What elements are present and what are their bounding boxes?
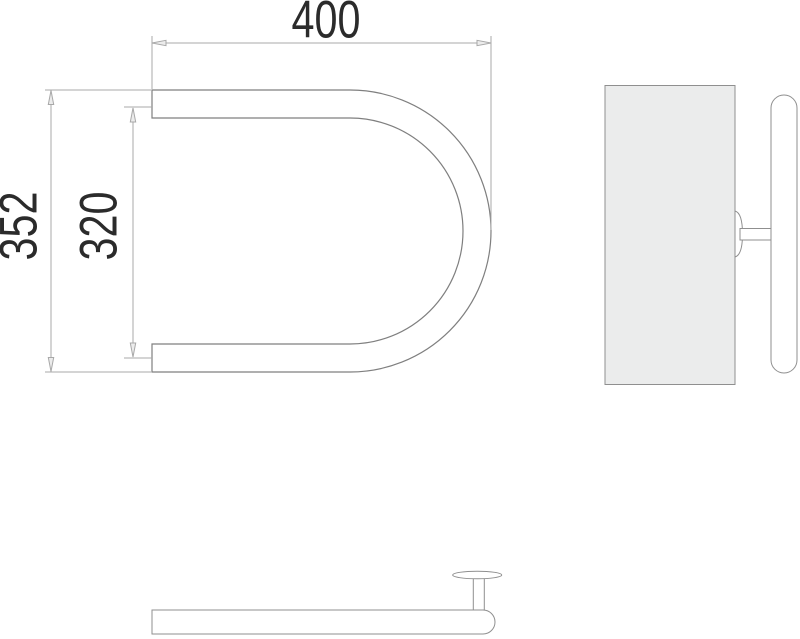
dimension-value-400: 400: [292, 0, 361, 47]
arrowhead-down-icon: [48, 358, 53, 372]
towel-rail-tube-outline: [152, 90, 491, 372]
bottom-view: [152, 571, 502, 634]
dimension-value-320: 320: [73, 192, 126, 261]
tube-side-profile: [771, 95, 797, 373]
arrowhead-left-icon: [152, 40, 166, 45]
dimension-value-352: 352: [0, 192, 46, 261]
arrowhead-up-icon: [48, 91, 53, 105]
arrowhead-up-icon: [130, 108, 135, 122]
technical-drawing: [0, 0, 800, 639]
front-view: [152, 90, 491, 372]
bracket-stem: [473, 575, 484, 610]
technical-drawing-canvas: 400 352 320: [0, 0, 800, 639]
bracket-arm: [740, 229, 771, 241]
wall-panel: [605, 86, 735, 385]
tube-bottom-profile: [152, 610, 495, 634]
side-view: [605, 86, 797, 385]
arrowhead-right-icon: [477, 40, 491, 45]
wall-plate-disc: [453, 571, 502, 579]
arrowhead-down-icon: [130, 343, 135, 357]
